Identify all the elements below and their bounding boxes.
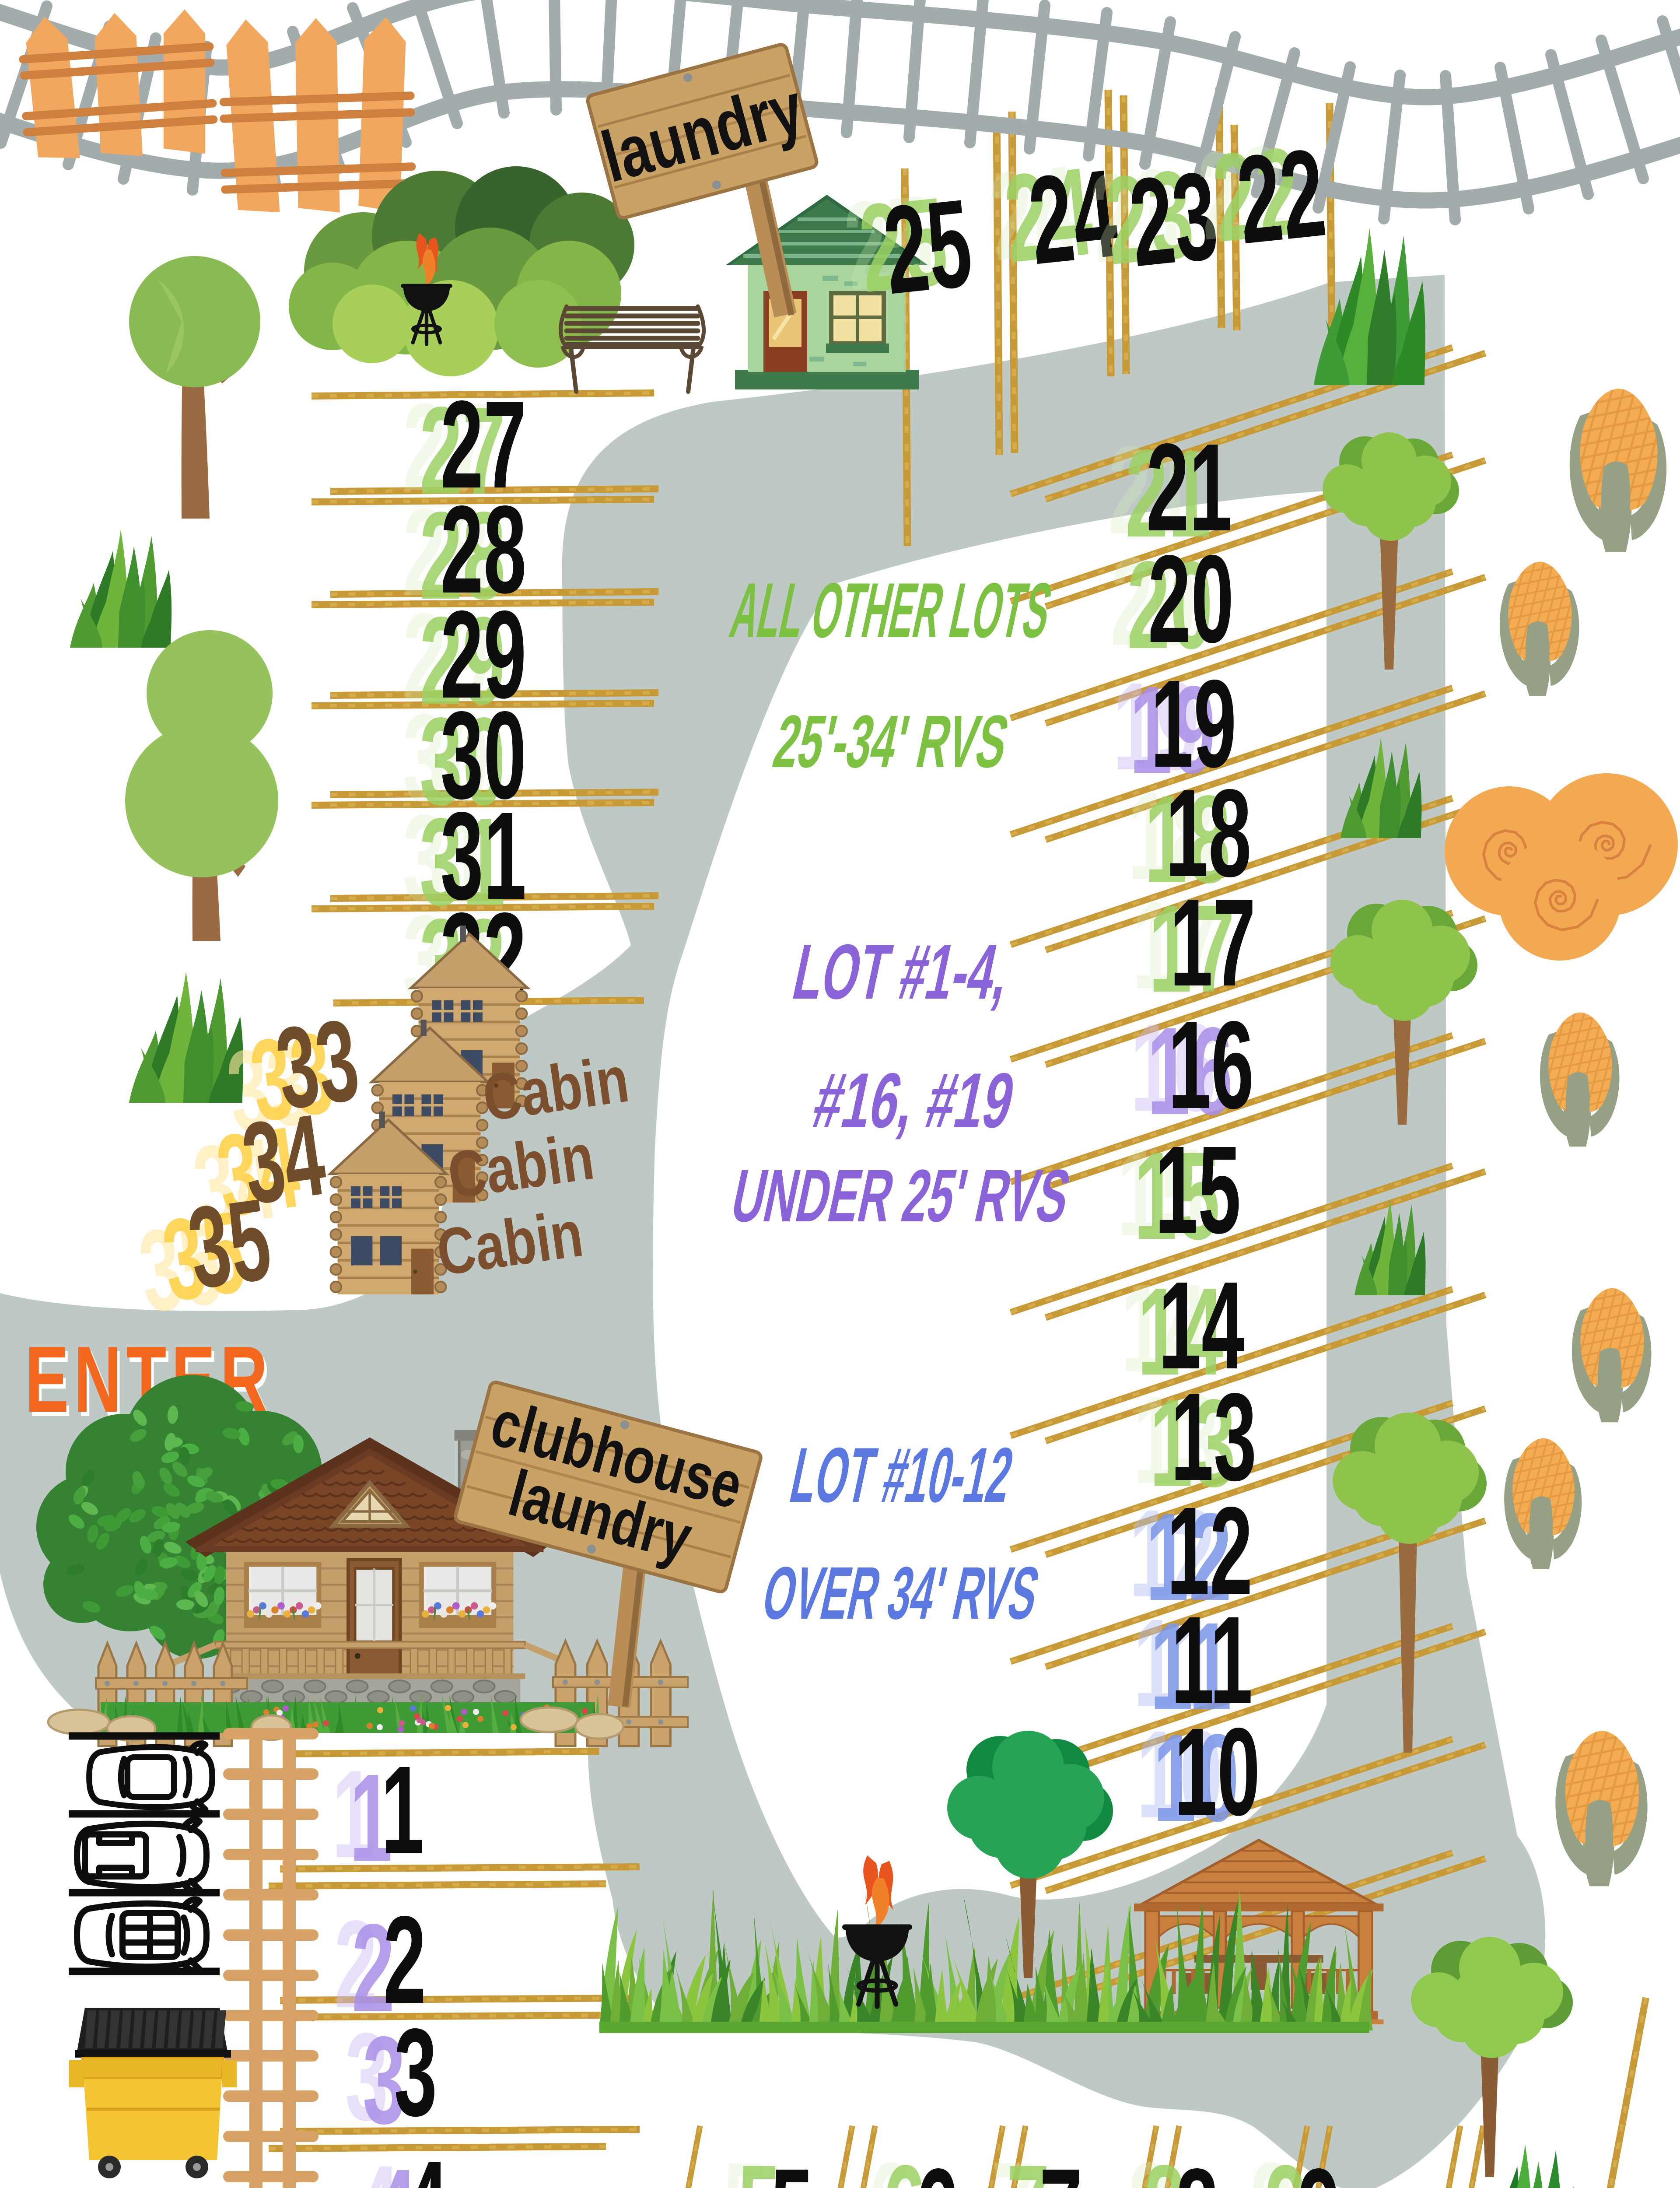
- svg-text:8: 8: [1176, 2143, 1218, 2188]
- svg-text:16: 16: [1168, 996, 1254, 1135]
- svg-text:17: 17: [1170, 873, 1256, 1013]
- svg-text:5: 5: [770, 2143, 813, 2188]
- svg-text:trash: trash: [92, 2183, 213, 2188]
- svg-text:7: 7: [1039, 2143, 1082, 2188]
- svg-text:9: 9: [1298, 2143, 1340, 2188]
- svg-text:10: 10: [1174, 1702, 1260, 1842]
- svg-text:LOT #1-4,: LOT #1-4,: [786, 928, 1018, 1015]
- svg-text:20: 20: [1148, 529, 1234, 669]
- svg-text:UNDER 25' RVS: UNDER 25' RVS: [725, 1154, 1077, 1238]
- svg-text:1: 1: [381, 1740, 424, 1880]
- svg-text:25: 25: [878, 173, 978, 320]
- svg-text:22: 22: [1231, 123, 1331, 270]
- svg-text:OVER 34' RVS: OVER 34' RVS: [756, 1552, 1046, 1635]
- svg-text:4: 4: [405, 2135, 448, 2188]
- svg-text:15: 15: [1155, 1120, 1241, 1260]
- svg-text:3: 3: [394, 2003, 437, 2142]
- svg-text:6: 6: [916, 2143, 959, 2188]
- svg-text:25'-34' RVS: 25'-34' RVS: [767, 700, 1016, 783]
- svg-text:ALL OTHER LOTS: ALL OTHER LOTS: [724, 567, 1059, 654]
- svg-text:#16, #19: #16, #19: [806, 1057, 1022, 1144]
- svg-text:LOT #10-12: LOT #10-12: [784, 1431, 1020, 1518]
